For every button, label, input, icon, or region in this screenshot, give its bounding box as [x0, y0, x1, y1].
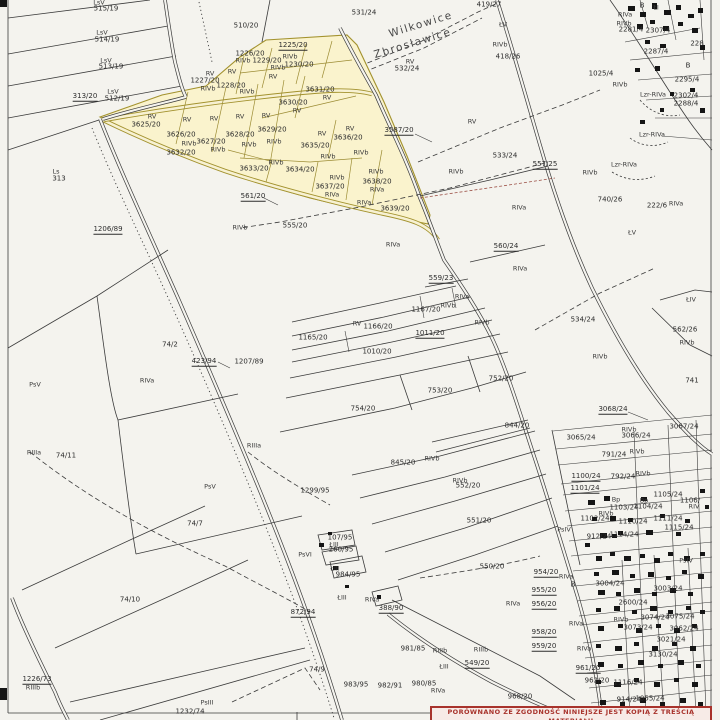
building-footprint — [700, 489, 705, 493]
building-footprint — [678, 22, 683, 26]
building-footprint — [0, 688, 7, 700]
building-footprint — [377, 595, 381, 599]
building-footprint — [674, 628, 680, 633]
left-parcels — [8, 250, 330, 720]
building-footprint — [634, 678, 639, 682]
building-footprint — [672, 642, 677, 646]
building-footprint — [660, 44, 666, 48]
building-footprint — [640, 120, 645, 124]
building-footprint — [676, 532, 681, 536]
building-footprint — [641, 497, 647, 501]
building-footprint — [610, 552, 615, 556]
building-footprint — [650, 20, 655, 24]
building-footprint — [654, 558, 660, 563]
building-footprint — [654, 682, 660, 687]
building-footprint — [618, 664, 623, 668]
building-footprint — [664, 10, 671, 15]
building-footprint — [668, 610, 673, 614]
building-footprint — [690, 88, 695, 92]
building-footprint — [634, 642, 639, 646]
building-footprint — [632, 610, 637, 614]
building-footprint — [684, 556, 690, 561]
building-footprint — [652, 3, 657, 9]
building-footprint — [646, 530, 653, 535]
building-footprint — [614, 682, 621, 687]
building-footprint — [698, 8, 703, 13]
building-footprint — [640, 554, 645, 558]
building-footprint — [588, 500, 595, 505]
building-footprint — [686, 606, 691, 610]
building-footprint — [688, 592, 693, 596]
center-strip-fields — [280, 286, 575, 700]
building-footprint — [658, 664, 663, 668]
building-footprint — [666, 576, 671, 580]
building-footprint — [700, 610, 705, 614]
building-footprint — [698, 574, 704, 579]
building-footprint — [624, 556, 631, 561]
building-footprint — [628, 6, 635, 11]
highlighted-parcel-cluster[interactable] — [100, 35, 438, 240]
building-footprint — [615, 646, 622, 651]
building-footprint — [682, 570, 687, 574]
building-footprint — [660, 514, 665, 518]
building-footprint — [616, 592, 621, 596]
meadow-pockets — [318, 530, 402, 606]
building-footprint — [648, 572, 654, 577]
map-linework — [0, 0, 720, 720]
building-footprint — [600, 700, 606, 705]
certification-stamp: PORÓWNANO ZE ZGODNOŚĆ NINIEJSZE JEST KOP… — [430, 706, 712, 720]
building-footprint — [598, 662, 604, 667]
building-footprint — [696, 664, 701, 668]
building-footprint — [690, 646, 696, 651]
building-footprint — [612, 534, 617, 538]
building-footprint — [674, 678, 679, 682]
building-footprint — [656, 624, 661, 628]
building-footprint — [692, 28, 698, 33]
building-footprint — [676, 5, 681, 10]
building-footprint — [596, 644, 601, 648]
building-footprint — [700, 552, 705, 556]
building-footprint — [640, 12, 646, 17]
building-footprint — [685, 519, 690, 523]
building-footprint — [594, 572, 599, 576]
building-footprint — [596, 556, 602, 561]
building-footprint — [596, 680, 601, 684]
building-footprint — [705, 505, 709, 509]
building-footprint — [655, 66, 660, 71]
building-footprint — [668, 552, 673, 556]
building-footprint — [692, 624, 697, 628]
building-footprint — [333, 566, 338, 570]
building-footprint — [652, 592, 657, 596]
cadastral-map: LsV515/19LsV514/19LsV513/19LsV512/19313/… — [0, 0, 720, 720]
building-footprint — [618, 531, 623, 535]
building-footprint — [636, 628, 642, 633]
building-footprint — [645, 40, 650, 44]
building-footprint — [650, 606, 657, 611]
building-footprint — [628, 518, 633, 522]
building-footprint — [680, 698, 686, 703]
building-footprint — [692, 682, 698, 687]
building-footprint — [319, 543, 324, 547]
building-footprint — [637, 24, 643, 29]
building-footprint — [660, 108, 664, 112]
building-footprint — [610, 516, 616, 521]
building-footprint — [678, 660, 684, 665]
building-footprint — [663, 26, 669, 31]
building-footprint — [0, 0, 7, 7]
building-footprint — [652, 646, 658, 651]
building-footprint — [634, 588, 640, 593]
building-footprint — [596, 608, 601, 612]
settlement-grid — [552, 415, 712, 718]
building-footprint — [592, 517, 597, 521]
building-footprint — [598, 626, 604, 631]
building-footprint — [700, 108, 705, 113]
building-footprint — [638, 660, 644, 665]
building-footprint — [670, 92, 674, 96]
building-footprint — [604, 496, 610, 501]
building-footprint — [600, 533, 607, 538]
building-footprint — [585, 543, 590, 547]
building-footprint — [635, 68, 640, 72]
building-footprint — [328, 532, 332, 535]
building-footprint — [598, 590, 605, 595]
building-footprint — [630, 574, 635, 578]
building-footprint — [670, 588, 676, 593]
building-footprint — [688, 14, 694, 18]
building-footprint — [700, 45, 705, 50]
building-footprint — [345, 585, 349, 588]
building-footprint — [612, 570, 619, 575]
building-footprint — [640, 698, 646, 703]
building-footprint — [614, 606, 620, 611]
building-footprint — [618, 624, 623, 628]
